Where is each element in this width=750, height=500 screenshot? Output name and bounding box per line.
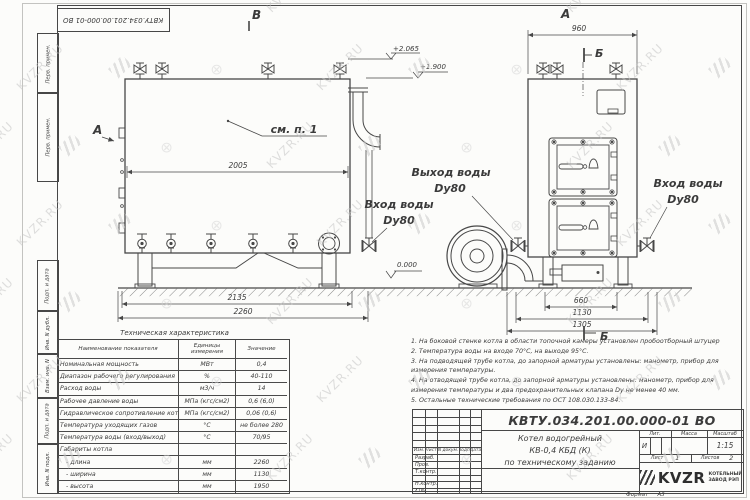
spec-cell: МВт xyxy=(179,359,236,371)
inlet-valve-icon xyxy=(640,238,654,252)
note-line: 3. На подводящей трубе котла, до запорно… xyxy=(411,357,744,377)
spec-cell: мм xyxy=(179,481,236,493)
callout-see-item-1: см. п. 1 xyxy=(227,120,327,136)
spec-cell: 1130 xyxy=(236,469,287,481)
note-line: 2. Температура воды на входе 70°С, на вы… xyxy=(411,347,744,357)
valve-icon xyxy=(537,63,549,79)
mass-header: Масса xyxy=(671,430,707,437)
col-podp: Подп. xyxy=(459,447,470,454)
spec-cell: °С xyxy=(179,420,236,432)
elevation-1900: +1.900 xyxy=(366,63,448,78)
drain-valve-icon xyxy=(166,234,176,253)
furnace-door xyxy=(549,199,617,257)
svg-text:Б: Б xyxy=(595,47,603,60)
dim-2005: 2005 xyxy=(127,161,348,178)
scale-value: 1:15 xyxy=(707,437,743,454)
svg-text:Вход воды: Вход воды xyxy=(653,177,722,190)
role-tkontr: Т.контр. xyxy=(413,468,439,475)
furnace-door xyxy=(549,138,617,196)
svg-text:+2.065: +2.065 xyxy=(393,45,419,53)
svg-text:2260: 2260 xyxy=(233,307,252,316)
left-inlet-label: Вход воды Dy80 xyxy=(364,198,433,242)
spec-cell: МПа (кгс/см2) xyxy=(179,396,236,408)
ground-hatch xyxy=(118,289,692,297)
spec-cell: °С xyxy=(179,432,236,444)
spec-cell: Температура воды (вход/выход) xyxy=(58,432,179,444)
spec-cell: 70/95 xyxy=(236,432,287,444)
svg-text:960: 960 xyxy=(572,24,587,33)
right-inlet-label: Вход воды Dy80 xyxy=(650,177,723,238)
svg-text:Dy80: Dy80 xyxy=(667,193,699,206)
spec-cell: 2260 xyxy=(236,456,287,468)
outlet-pipe-elbow xyxy=(348,88,380,238)
spec-cell: Номинальная мощность xyxy=(58,359,179,371)
svg-text:1305: 1305 xyxy=(572,320,591,329)
spec-cell: 0,4 xyxy=(236,359,287,371)
format-value: А3 xyxy=(657,492,664,498)
company-logo: KVZR КОТЕЛЬНЫЙ ЗАВОД РЭП xyxy=(639,462,743,493)
svg-text:Выход воды: Выход воды xyxy=(411,166,490,179)
spec-cell: - длина xyxy=(58,456,179,468)
valve-icon xyxy=(610,63,622,79)
spec-cell: - высота xyxy=(58,481,179,493)
valve-icon xyxy=(134,63,146,79)
svg-text:+1.900: +1.900 xyxy=(420,63,446,71)
col-list: Лист xyxy=(425,447,437,454)
col-izm: Изм. xyxy=(413,447,425,454)
role-utv: Утв. xyxy=(413,488,439,494)
svg-text:2135: 2135 xyxy=(227,293,246,302)
spec-cell: 40-110 xyxy=(236,371,287,383)
drain-valve-icon xyxy=(137,234,147,253)
spec-cell: Габариты котла xyxy=(58,444,179,456)
product-title-line1: Котел водогрейный xyxy=(518,433,602,445)
spec-cell: 0,6 (6,0) xyxy=(236,396,287,408)
flange-icon xyxy=(319,233,340,254)
spec-cell: Гидравлическое сопротивление котла xyxy=(58,408,179,420)
valve-icon xyxy=(262,63,274,79)
view-a-label: А xyxy=(560,7,570,21)
svg-text:1130: 1130 xyxy=(572,308,591,317)
svg-text:см. п. 1: см. п. 1 xyxy=(271,123,318,136)
lit-header: Лит. xyxy=(639,430,671,437)
elevation-zero: 0.000 xyxy=(386,261,422,278)
view-b-label: В xyxy=(252,8,261,22)
col-data: Дата xyxy=(470,447,481,454)
svg-text:0.000: 0.000 xyxy=(397,261,418,269)
spec-header-unit: Единицы измерения xyxy=(179,340,236,359)
note-line: 1. На боковой стенке котла в области топ… xyxy=(411,337,744,347)
sheets-value: 2 xyxy=(729,454,733,462)
spec-header-value: Значение xyxy=(236,340,287,359)
drawing-sheet: Перв. примен. Перв. примен. Подп. и дата… xyxy=(0,0,750,500)
valve-icon xyxy=(156,63,168,79)
role-prov: Пров. xyxy=(413,461,439,468)
section-a-label: А xyxy=(92,123,102,137)
sheet-cell: Лист 1 xyxy=(639,454,691,462)
kvzr-logo-subtitle: КОТЕЛЬНЫЙ ЗАВОД РЭП xyxy=(708,472,742,483)
drain-valve-icon xyxy=(288,234,298,253)
spec-cell: МПа (кгс/см2) xyxy=(179,408,236,420)
doc-number: КВТУ.034.201.00.000-01 ВО xyxy=(481,410,743,430)
svg-text:2005: 2005 xyxy=(228,161,247,170)
svg-text:660: 660 xyxy=(574,296,589,305)
spec-cell: Диапазон рабочего регулирования xyxy=(58,371,179,383)
spec-cell: Рабочее давление воды xyxy=(58,396,179,408)
fan-duct-elbow xyxy=(502,249,543,290)
spec-table: Наименование показателя Единицы измерени… xyxy=(57,339,290,494)
blower-fan-icon xyxy=(447,226,507,288)
outlet-valve-icon xyxy=(511,238,525,252)
lit-value: И xyxy=(639,437,650,454)
elevation-2065: +2.065 xyxy=(348,45,420,59)
spec-cell: 14 xyxy=(236,383,287,395)
sheet-label: Лист xyxy=(651,455,664,461)
spec-table-title: Техническая характеристика xyxy=(92,329,257,337)
spec-cell xyxy=(179,444,236,456)
col-ndoc: N докум. xyxy=(437,447,459,454)
drain-valve-icon xyxy=(206,234,216,253)
spec-cell: % xyxy=(179,371,236,383)
spec-cell: 1950 xyxy=(236,481,287,493)
logo-sub-line2: ЗАВОД РЭП xyxy=(708,478,742,484)
spec-cell: м3/ч xyxy=(179,383,236,395)
sheets-label: Листов xyxy=(701,455,720,461)
section-b-top: Б xyxy=(584,47,603,62)
product-title-line2: КВ-0,4 КБД (К) xyxy=(529,445,590,457)
drain-valve-icon xyxy=(248,234,258,253)
format-word: Формат xyxy=(626,492,648,498)
note-line: 5. Остальные технические требования по О… xyxy=(411,396,744,406)
scale-header: Масштаб xyxy=(707,430,743,437)
svg-text:Dy80: Dy80 xyxy=(434,182,466,195)
spec-cell: мм xyxy=(179,456,236,468)
sheets-cell: Листов 2 xyxy=(691,454,743,462)
kvzr-logo-text: KVZR xyxy=(658,469,706,487)
product-title-line3: по техническому заданию xyxy=(504,457,615,469)
valve-icon xyxy=(334,63,346,79)
spec-cell: Расход воды xyxy=(58,383,179,395)
role-razrab: Разраб. xyxy=(413,454,439,461)
spec-cell: 0,06 (0,6) xyxy=(236,408,287,420)
title-block: Изм. Лист N докум. Подп. Дата Разраб. Пр… xyxy=(412,409,744,494)
inspection-hatch xyxy=(597,90,625,114)
spec-header-name: Наименование показателя xyxy=(58,340,179,359)
spec-cell: не более 280 xyxy=(236,420,287,432)
sheet-value: 1 xyxy=(675,454,679,462)
product-title: Котел водогрейный КВ-0,4 КБД (К) по техн… xyxy=(481,430,639,471)
spec-cell xyxy=(236,444,287,456)
valve-icon xyxy=(551,63,563,79)
spec-cell: мм xyxy=(179,469,236,481)
svg-text:Вход воды: Вход воды xyxy=(364,198,433,211)
note-line: 4. На отводящей трубе котла, до запорной… xyxy=(411,376,744,396)
kvzr-logo-icon xyxy=(640,470,655,485)
spec-cell: Температура уходящих газов xyxy=(58,420,179,432)
format-label: Формат А3 xyxy=(626,492,665,498)
boiler-base xyxy=(539,257,632,288)
spec-cell: - ширина xyxy=(58,469,179,481)
technical-notes: 1. На боковой стенке котла в области топ… xyxy=(411,337,744,405)
boiler-side-view xyxy=(119,63,380,288)
svg-text:Dy80: Dy80 xyxy=(383,214,415,227)
